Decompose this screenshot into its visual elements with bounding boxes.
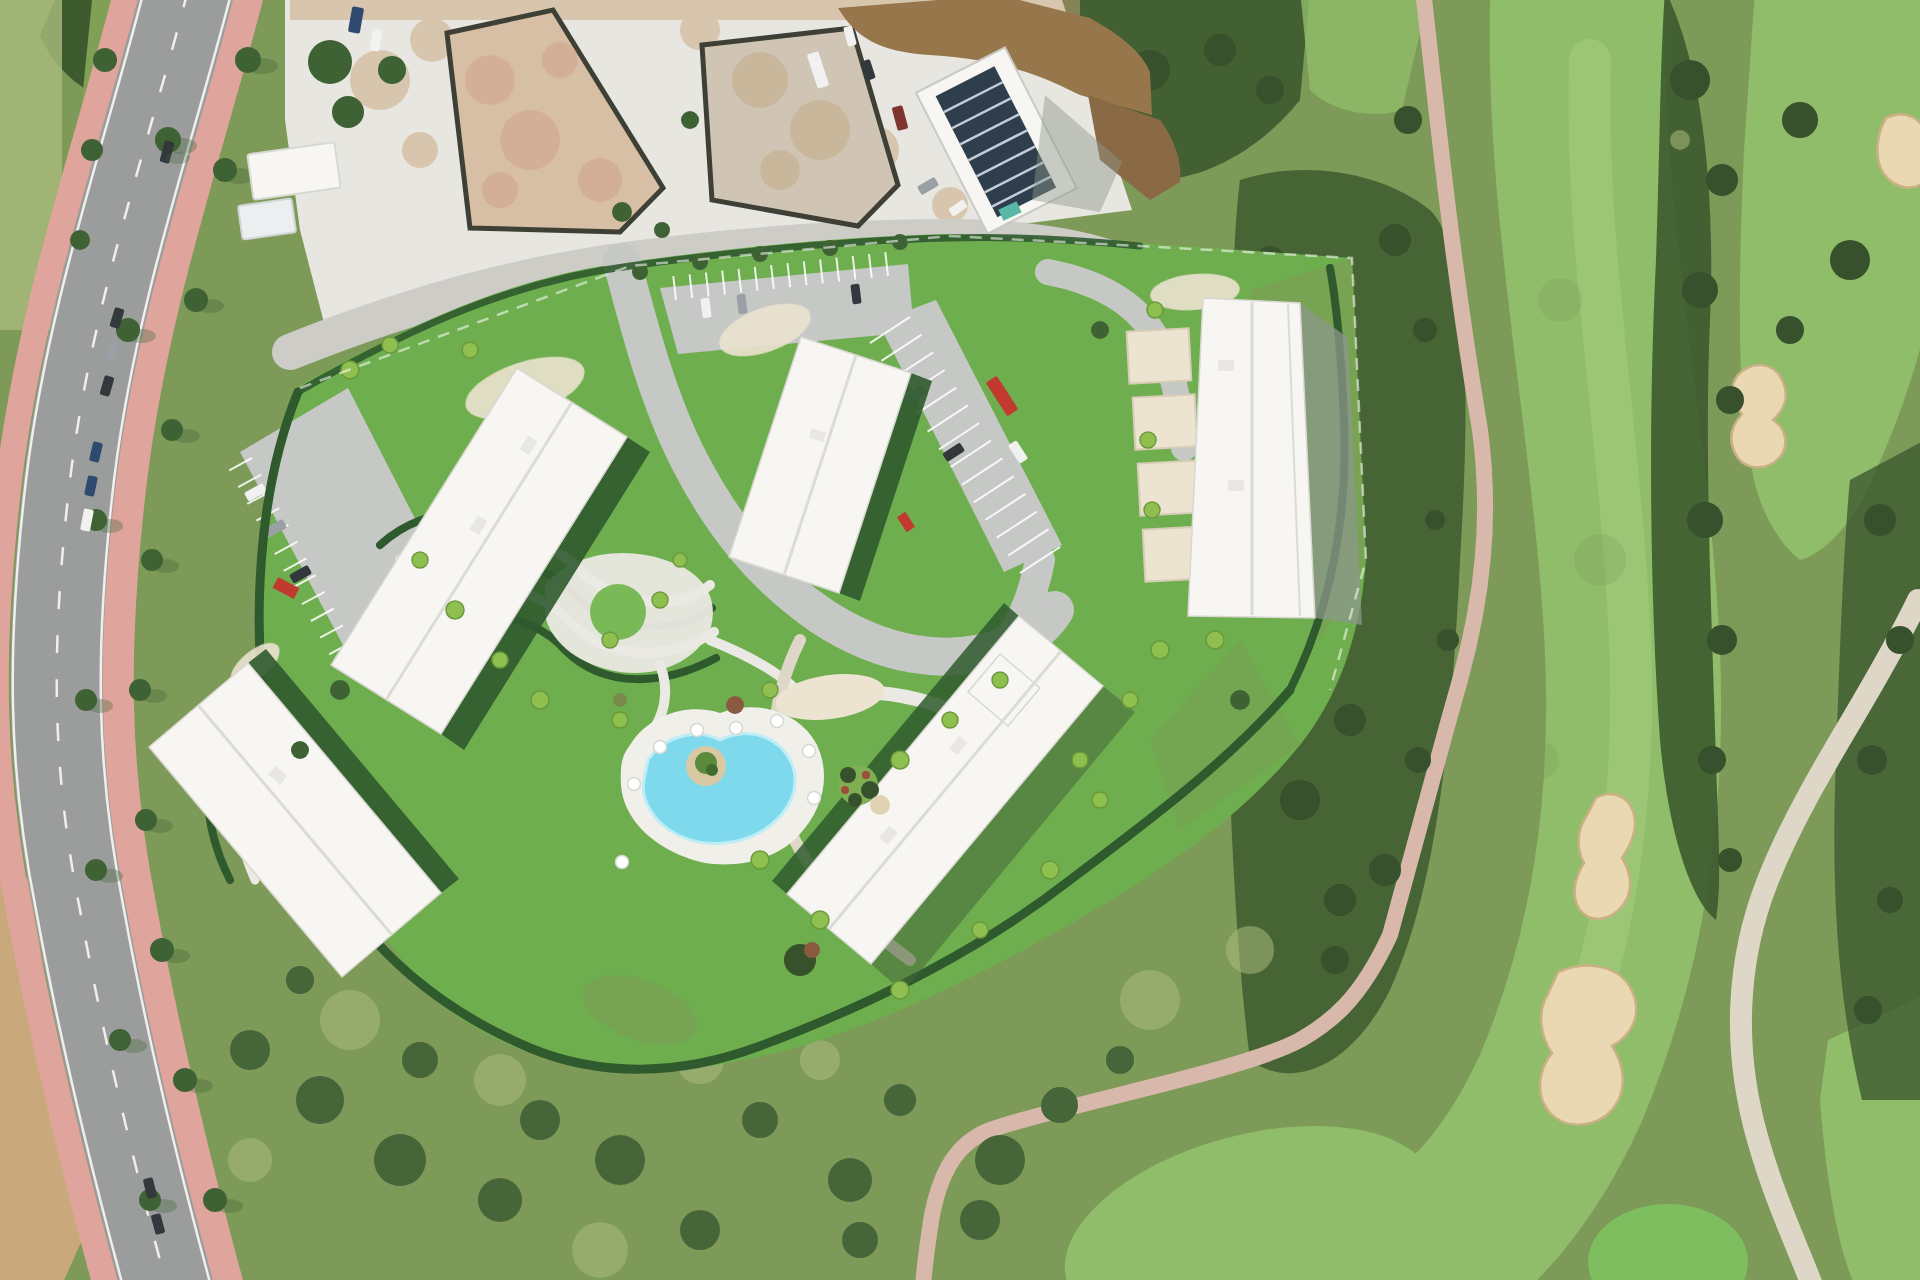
parasol <box>803 745 816 758</box>
parasol <box>730 722 743 735</box>
parasol <box>628 778 641 791</box>
building-northeast <box>1188 298 1362 625</box>
container <box>238 198 296 239</box>
screenshot-stage <box>0 0 1920 1280</box>
parasol <box>616 856 629 869</box>
parasol <box>808 792 821 805</box>
parasol <box>691 724 704 737</box>
aerial-view <box>0 0 1920 1280</box>
plaza-lawn-circle <box>590 584 646 640</box>
sand-bunker <box>1731 365 1785 467</box>
parasol <box>654 741 667 754</box>
parasol <box>771 715 784 728</box>
